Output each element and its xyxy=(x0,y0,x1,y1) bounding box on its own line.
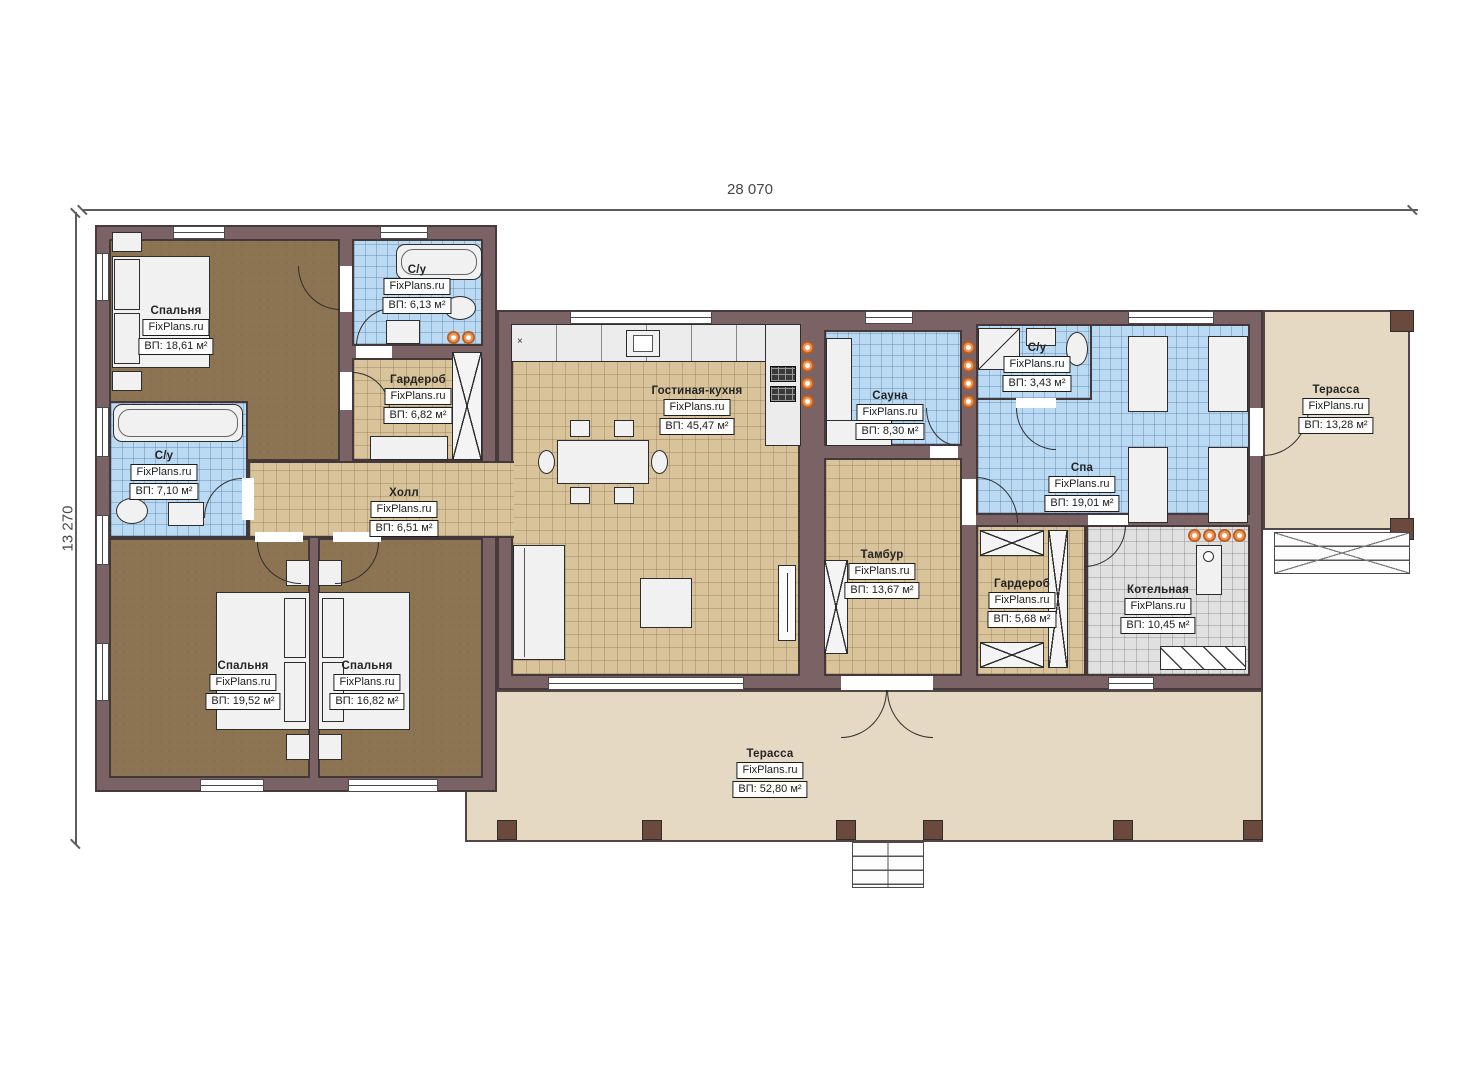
bed-pillow xyxy=(114,259,140,310)
light-dot xyxy=(1233,529,1246,542)
nightstand xyxy=(112,371,142,391)
dimension-label-width: 28 070 xyxy=(700,181,800,198)
light-dot xyxy=(1203,529,1216,542)
room-area: ВП: 3,43 м² xyxy=(1002,375,1071,392)
chair xyxy=(614,420,634,437)
room-name: Спальня xyxy=(205,660,280,672)
room-brand: FixPlans.ru xyxy=(209,674,276,691)
wardrobe-unit xyxy=(980,530,1044,556)
dresser xyxy=(370,436,448,460)
room-brand: FixPlans.ru xyxy=(370,501,437,518)
light-dot xyxy=(962,359,975,372)
nightstand xyxy=(112,232,142,252)
window xyxy=(1108,677,1154,690)
room-label-boiler-room: Котельная FixPlans.ru ВП: 10,45 м² xyxy=(1120,584,1195,634)
room-name: Холл xyxy=(369,487,438,499)
room-brand: FixPlans.ru xyxy=(663,399,730,416)
coffee-table xyxy=(640,578,692,628)
room-label-terrace-right: Терасса FixPlans.ru ВП: 13,28 м² xyxy=(1298,384,1373,434)
light-dot xyxy=(1218,529,1231,542)
room-brand: FixPlans.ru xyxy=(1048,476,1115,493)
room-label-hall: Холл FixPlans.ru ВП: 6,51 м² xyxy=(369,487,438,537)
door-opening xyxy=(1088,515,1128,525)
spa-lounger xyxy=(1208,336,1248,412)
spa-lounger xyxy=(1128,447,1168,523)
kitchen-counter-column xyxy=(765,324,801,446)
dimension-line-top xyxy=(82,209,1418,211)
room-name: Спа xyxy=(1044,462,1119,474)
door-opening xyxy=(340,266,352,312)
room-name: Терасса xyxy=(1298,384,1373,396)
door-opening xyxy=(242,478,254,520)
sink xyxy=(168,502,204,526)
toilet xyxy=(116,498,148,524)
room-area: ВП: 18,61 м² xyxy=(138,338,213,355)
door-opening xyxy=(1250,408,1263,456)
room-brand: FixPlans.ru xyxy=(856,404,923,421)
room-area: ВП: 7,10 м² xyxy=(129,483,198,500)
door-opening xyxy=(255,532,303,542)
stove xyxy=(770,386,796,402)
window xyxy=(173,226,225,239)
window xyxy=(1128,311,1214,324)
light-dot xyxy=(1188,529,1201,542)
light-dot xyxy=(801,341,814,354)
room-area: ВП: 13,28 м² xyxy=(1298,417,1373,434)
window xyxy=(96,253,109,301)
window xyxy=(380,226,428,239)
entrance-door-opening xyxy=(841,676,933,690)
room-label-wardrobe-2: Гардероб FixPlans.ru ВП: 5,68 м² xyxy=(987,578,1056,628)
bed-pillow xyxy=(284,598,306,658)
chair xyxy=(570,420,590,437)
room-name: С/у xyxy=(382,264,451,276)
room-label-bathroom-2: С/у FixPlans.ru ВП: 7,10 м² xyxy=(129,450,198,500)
light-dot xyxy=(801,377,814,390)
room-area: ВП: 16,82 м² xyxy=(329,693,404,710)
room-label-tambur: Тамбур FixPlans.ru ВП: 13,67 м² xyxy=(844,549,919,599)
room-name: Сауна xyxy=(855,390,924,402)
chair xyxy=(614,487,634,504)
vent-grille xyxy=(1160,646,1246,670)
room-area: ВП: 5,68 м² xyxy=(987,611,1056,628)
room-brand: FixPlans.ru xyxy=(333,674,400,691)
chair xyxy=(651,450,668,474)
dining-table xyxy=(557,440,649,484)
room-brand: FixPlans.ru xyxy=(142,319,209,336)
light-dot xyxy=(447,331,460,344)
room-name: С/у xyxy=(1002,342,1071,354)
room-name: Терасса xyxy=(732,748,807,760)
kitchen-sink-bowl xyxy=(633,335,653,352)
room-name: Тамбур xyxy=(844,549,919,561)
room-name: Гардероб xyxy=(383,374,452,386)
light-dot xyxy=(801,395,814,408)
room-area: ВП: 10,45 м² xyxy=(1120,617,1195,634)
door-opening xyxy=(962,479,976,525)
spa-lounger xyxy=(1208,447,1248,523)
room-brand: FixPlans.ru xyxy=(1003,356,1070,373)
room-area: ВП: 19,01 м² xyxy=(1044,495,1119,512)
room-brand: FixPlans.ru xyxy=(1302,398,1369,415)
bed-pillow xyxy=(322,598,344,658)
post xyxy=(923,820,943,840)
room-brand: FixPlans.ru xyxy=(848,563,915,580)
door-opening xyxy=(356,346,392,358)
door-opening xyxy=(930,446,958,458)
room-label-bedroom-1: Спальня FixPlans.ru ВП: 18,61 м² xyxy=(138,305,213,355)
room-brand: FixPlans.ru xyxy=(736,762,803,779)
chair xyxy=(538,450,555,474)
room-area: ВП: 6,13 м² xyxy=(382,297,451,314)
counter-marker: × xyxy=(517,336,523,347)
room-label-spa: Спа FixPlans.ru ВП: 19,01 м² xyxy=(1044,462,1119,512)
room-brand: FixPlans.ru xyxy=(384,388,451,405)
stairs xyxy=(1274,532,1410,574)
room-area: ВП: 6,51 м² xyxy=(369,520,438,537)
room-name: С/у xyxy=(129,450,198,462)
door-opening xyxy=(340,372,352,410)
room-label-bedroom-2: Спальня FixPlans.ru ВП: 19,52 м² xyxy=(205,660,280,710)
room-name: Гардероб xyxy=(987,578,1056,590)
bed-pillow xyxy=(114,313,140,364)
light-dot xyxy=(962,377,975,390)
room-label-bedroom-3: Спальня FixPlans.ru ВП: 16,82 м² xyxy=(329,660,404,710)
post xyxy=(1113,820,1133,840)
floor-plan: 28 070 13 270 × xyxy=(0,0,1473,1080)
room-label-wardrobe-1: Гардероб FixPlans.ru ВП: 6,82 м² xyxy=(383,374,452,424)
post xyxy=(642,820,662,840)
wardrobe-unit xyxy=(980,642,1044,668)
room-label-bathroom-3: С/у FixPlans.ru ВП: 3,43 м² xyxy=(1002,342,1071,392)
bed-pillow xyxy=(284,662,306,722)
dimension-label-height: 13 270 xyxy=(60,479,77,579)
post xyxy=(1390,310,1414,332)
room-area: ВП: 8,30 м² xyxy=(855,423,924,440)
window xyxy=(96,407,109,457)
spa-lounger xyxy=(1128,336,1168,412)
light-dot xyxy=(801,359,814,372)
light-dot xyxy=(962,341,975,354)
room-name: Котельная xyxy=(1120,584,1195,596)
stove xyxy=(770,366,796,382)
room-brand: FixPlans.ru xyxy=(383,278,450,295)
radiator xyxy=(778,565,796,641)
window xyxy=(96,643,109,701)
window xyxy=(548,677,744,690)
room-brand: FixPlans.ru xyxy=(988,592,1055,609)
post xyxy=(497,820,517,840)
room-name: Спальня xyxy=(329,660,404,672)
boiler-gauge xyxy=(1203,551,1214,562)
room-label-bathroom-1: С/у FixPlans.ru ВП: 6,13 м² xyxy=(382,264,451,314)
room-area: ВП: 52,80 м² xyxy=(732,781,807,798)
room-area: ВП: 6,82 м² xyxy=(383,407,452,424)
light-dot xyxy=(462,331,475,344)
window xyxy=(348,779,438,792)
post xyxy=(836,820,856,840)
room-label-sauna: Сауна FixPlans.ru ВП: 8,30 м² xyxy=(855,390,924,440)
stairs xyxy=(852,842,924,888)
nightstand xyxy=(286,734,310,760)
room-name: Гостиная-кухня xyxy=(652,385,743,397)
room-area: ВП: 19,52 м² xyxy=(205,693,280,710)
post xyxy=(1243,820,1263,840)
light-dot xyxy=(962,395,975,408)
room-label-living-kitchen: Гостиная-кухня FixPlans.ru ВП: 45,47 м² xyxy=(652,385,743,435)
room-brand: FixPlans.ru xyxy=(130,464,197,481)
nightstand xyxy=(318,734,342,760)
bathtub xyxy=(113,404,243,442)
window xyxy=(96,515,109,565)
room-label-terrace-bottom: Терасса FixPlans.ru ВП: 52,80 м² xyxy=(732,748,807,798)
window xyxy=(865,311,913,324)
door-opening xyxy=(1016,398,1056,408)
room-name: Спальня xyxy=(138,305,213,317)
room-area: ВП: 13,67 м² xyxy=(844,582,919,599)
sofa xyxy=(513,545,565,660)
wardrobe-unit xyxy=(452,352,482,460)
window xyxy=(570,311,712,324)
chair xyxy=(570,487,590,504)
room-area: ВП: 45,47 м² xyxy=(659,418,734,435)
room-brand: FixPlans.ru xyxy=(1124,598,1191,615)
window xyxy=(200,779,264,792)
